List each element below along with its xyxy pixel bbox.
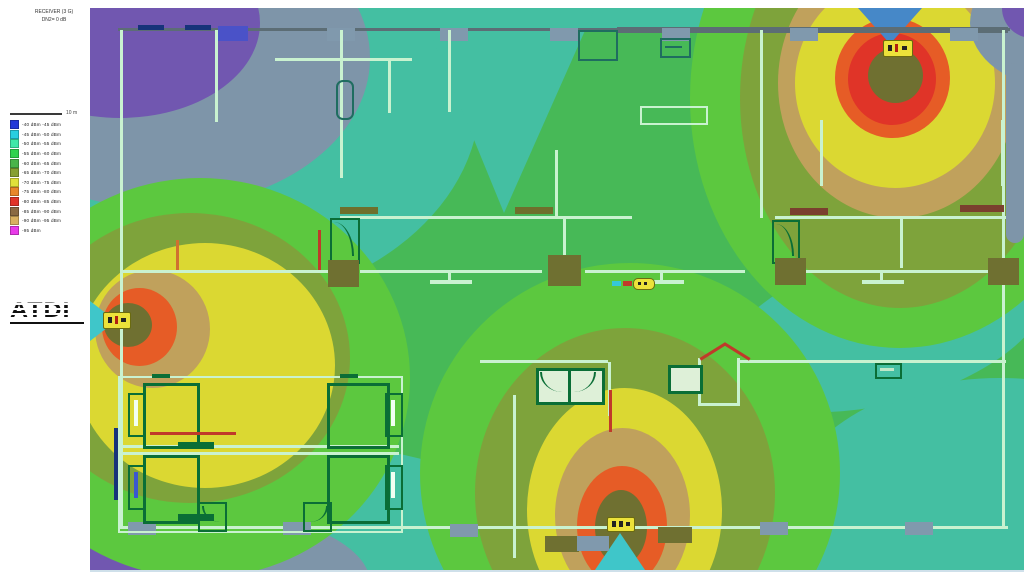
legend-item: -80 dBm -85 dBm — [10, 197, 88, 207]
legend-item: -55 dBm -60 dBm — [10, 149, 88, 159]
door-frame — [330, 218, 360, 264]
legend-color-chip — [10, 130, 19, 139]
shaft-bracket — [128, 393, 146, 437]
door-swing-arc — [310, 506, 328, 522]
beam-bar — [340, 207, 378, 214]
wall-stub — [430, 280, 472, 284]
orange-line — [176, 240, 179, 270]
antenna-icon — [121, 318, 126, 322]
door-swing-arc — [776, 224, 794, 256]
legend-item: -40 dBm -45 dBm — [10, 120, 88, 130]
legend-item: -65 dBm -70 dBm — [10, 168, 88, 178]
shaft-bracket — [128, 465, 146, 510]
atdi-logo-text: ATDI — [10, 298, 88, 323]
shaft-slot — [391, 400, 395, 426]
legend-color-chip — [10, 168, 19, 177]
shaft-slot — [391, 472, 395, 498]
window — [905, 522, 933, 535]
coverage-zone-gray-rightedge — [1006, 63, 1024, 243]
antenna-icon — [626, 522, 630, 526]
legend-color-chip — [10, 207, 19, 216]
room-outline — [640, 106, 708, 125]
wall-corridor — [585, 270, 745, 273]
room-niche-outline — [578, 30, 618, 61]
red-line — [318, 230, 321, 270]
legend-label: -50 dBm -55 dBm — [22, 141, 61, 146]
furniture-arc — [574, 372, 596, 392]
wall-partition — [513, 395, 516, 558]
wall-corridor-upper — [340, 216, 632, 219]
legend-color-chip — [10, 149, 19, 158]
window — [790, 28, 818, 41]
wall-office-row — [740, 360, 1006, 363]
fixture-box-line — [665, 46, 682, 48]
exit-sign-box — [875, 363, 902, 379]
fixture-box — [660, 38, 691, 58]
corridor-marker-cyan — [612, 281, 621, 286]
shaft-mark — [152, 374, 170, 378]
legend-color-chip — [10, 139, 19, 148]
legend-item: -50 dBm -55 dBm — [10, 139, 88, 149]
antenna-icon — [888, 45, 892, 51]
window — [950, 28, 978, 41]
legend-label: -75 dBm -80 dBm — [22, 189, 61, 194]
legend-item: -95 dBm — [10, 226, 88, 236]
legend-label: -45 dBm -50 dBm — [22, 132, 61, 137]
logo-stripe — [10, 303, 86, 305]
map-header-text: RECEIVER (3 G) DN2= 0 dB — [18, 8, 90, 24]
window-blue — [218, 26, 248, 41]
shaft-slot-blue — [134, 472, 138, 498]
atdi-logo: ATDI — [10, 296, 88, 326]
beam-bar — [515, 207, 553, 214]
column-block — [545, 536, 579, 552]
legend-item: -90 dBm -95 dBm — [10, 216, 88, 226]
wall-segment-navy — [185, 25, 211, 30]
fixture-capsule — [336, 80, 354, 120]
elevator-shaft — [327, 455, 390, 524]
red-door-line — [150, 432, 236, 435]
legend-color-chip — [10, 159, 19, 168]
shaft-mark — [340, 374, 358, 378]
beam-bar — [960, 205, 1004, 212]
legend-item: -75 dBm -80 dBm — [10, 187, 88, 197]
door-swing-arc — [334, 222, 354, 256]
elevator-shaft — [327, 383, 390, 449]
legend-label: -90 dBm -95 dBm — [22, 218, 61, 223]
wall-partition — [900, 218, 903, 268]
legend-label: -40 dBm -45 dBm — [22, 122, 61, 127]
door-box — [303, 502, 332, 532]
furniture-arc — [540, 372, 562, 392]
scale-bar-line — [10, 113, 62, 115]
antenna-icon — [619, 521, 623, 527]
legend-label: -60 dBm -65 dBm — [22, 161, 61, 166]
logo-stripe — [10, 313, 86, 315]
elevator-shaft — [143, 383, 200, 449]
legend-item: -70 dBm -75 dBm — [10, 178, 88, 188]
wall-niche — [737, 358, 740, 406]
column-block — [548, 255, 581, 286]
marker-dot — [644, 282, 647, 285]
antenna-icon — [108, 317, 112, 323]
wall-partition — [275, 58, 412, 61]
legend-color-chip — [10, 197, 19, 206]
legend-color-chip — [10, 178, 19, 187]
legend-label: -70 dBm -75 dBm — [22, 180, 61, 185]
application-window: RECEIVER (3 G) DN2= 0 dB 10 m -40 dBm -4… — [0, 0, 1024, 579]
legend-item: -85 dBm -90 dBm — [10, 206, 88, 216]
exit-sign-bar — [880, 368, 894, 371]
wall-partition — [760, 30, 763, 218]
legend-label: -85 dBm -90 dBm — [22, 209, 61, 214]
corridor-marker-label — [633, 278, 655, 290]
legend-label: -95 dBm — [22, 228, 41, 233]
header-line2: DN2= 0 dB — [18, 16, 90, 24]
column-block — [988, 258, 1019, 285]
coverage-legend: -40 dBm -45 dBm-45 dBm -50 dBm-50 dBm -5… — [10, 120, 88, 235]
wall-corridor — [800, 270, 1003, 273]
window — [440, 28, 468, 41]
coverage-map-canvas[interactable] — [90, 8, 1024, 570]
legend-color-chip — [10, 216, 19, 225]
window — [760, 522, 788, 535]
window — [550, 28, 578, 41]
wall-corridor-upper — [775, 216, 1006, 219]
transmitter-marker-center[interactable] — [607, 517, 635, 532]
wall-corridor — [360, 270, 542, 273]
shaft-bracket — [385, 465, 403, 510]
antenna-icon — [115, 316, 118, 324]
wall-partition — [448, 30, 451, 112]
wall-partition — [215, 30, 218, 122]
transmitter-marker-left[interactable] — [103, 312, 131, 329]
legend-color-chip — [10, 226, 19, 235]
door-swing-arc — [202, 506, 220, 522]
wall-partition — [388, 61, 391, 113]
transmitter-marker-topright[interactable] — [883, 40, 913, 57]
wall-office-row — [480, 360, 608, 363]
shaft-door-tick — [178, 442, 214, 449]
wall-partition — [555, 150, 558, 218]
wall-partition — [820, 120, 823, 186]
door-box — [198, 502, 227, 532]
legend-color-chip — [10, 120, 19, 129]
header-line1: RECEIVER (3 G) — [18, 8, 90, 16]
antenna-icon — [612, 521, 616, 527]
logo-underline — [10, 322, 84, 324]
antenna-icon — [902, 46, 907, 50]
column-block — [328, 260, 359, 287]
wall-niche — [698, 403, 740, 406]
corridor-marker-red — [623, 281, 632, 286]
legend-item: -60 dBm -65 dBm — [10, 158, 88, 168]
column-block — [775, 258, 806, 285]
wall-corridor — [123, 270, 335, 273]
column-block — [658, 527, 692, 543]
wall-stub — [862, 280, 904, 284]
legend-color-chip — [10, 187, 19, 196]
logo-stripe — [10, 308, 86, 310]
beam-bar — [790, 208, 828, 215]
legend-label: -55 dBm -60 dBm — [22, 151, 61, 156]
shaft-slot — [134, 400, 138, 426]
wall-partition — [1001, 120, 1004, 186]
marker-dot — [638, 282, 641, 285]
furniture-box — [668, 365, 703, 394]
furniture-table — [568, 368, 605, 405]
legend-label: -80 dBm -85 dBm — [22, 199, 61, 204]
shaft-bracket — [385, 393, 403, 437]
scale-bar-label: 10 m — [66, 110, 77, 116]
legend-label: -65 dBm -70 dBm — [22, 170, 61, 175]
red-line — [609, 390, 612, 432]
window — [450, 524, 478, 537]
window — [577, 536, 609, 551]
antenna-icon — [895, 44, 898, 52]
map-bottom-border — [90, 570, 1024, 572]
legend-item: -45 dBm -50 dBm — [10, 130, 88, 140]
scale-bar: 10 m — [10, 111, 80, 119]
wall-segment-navy — [138, 25, 164, 30]
